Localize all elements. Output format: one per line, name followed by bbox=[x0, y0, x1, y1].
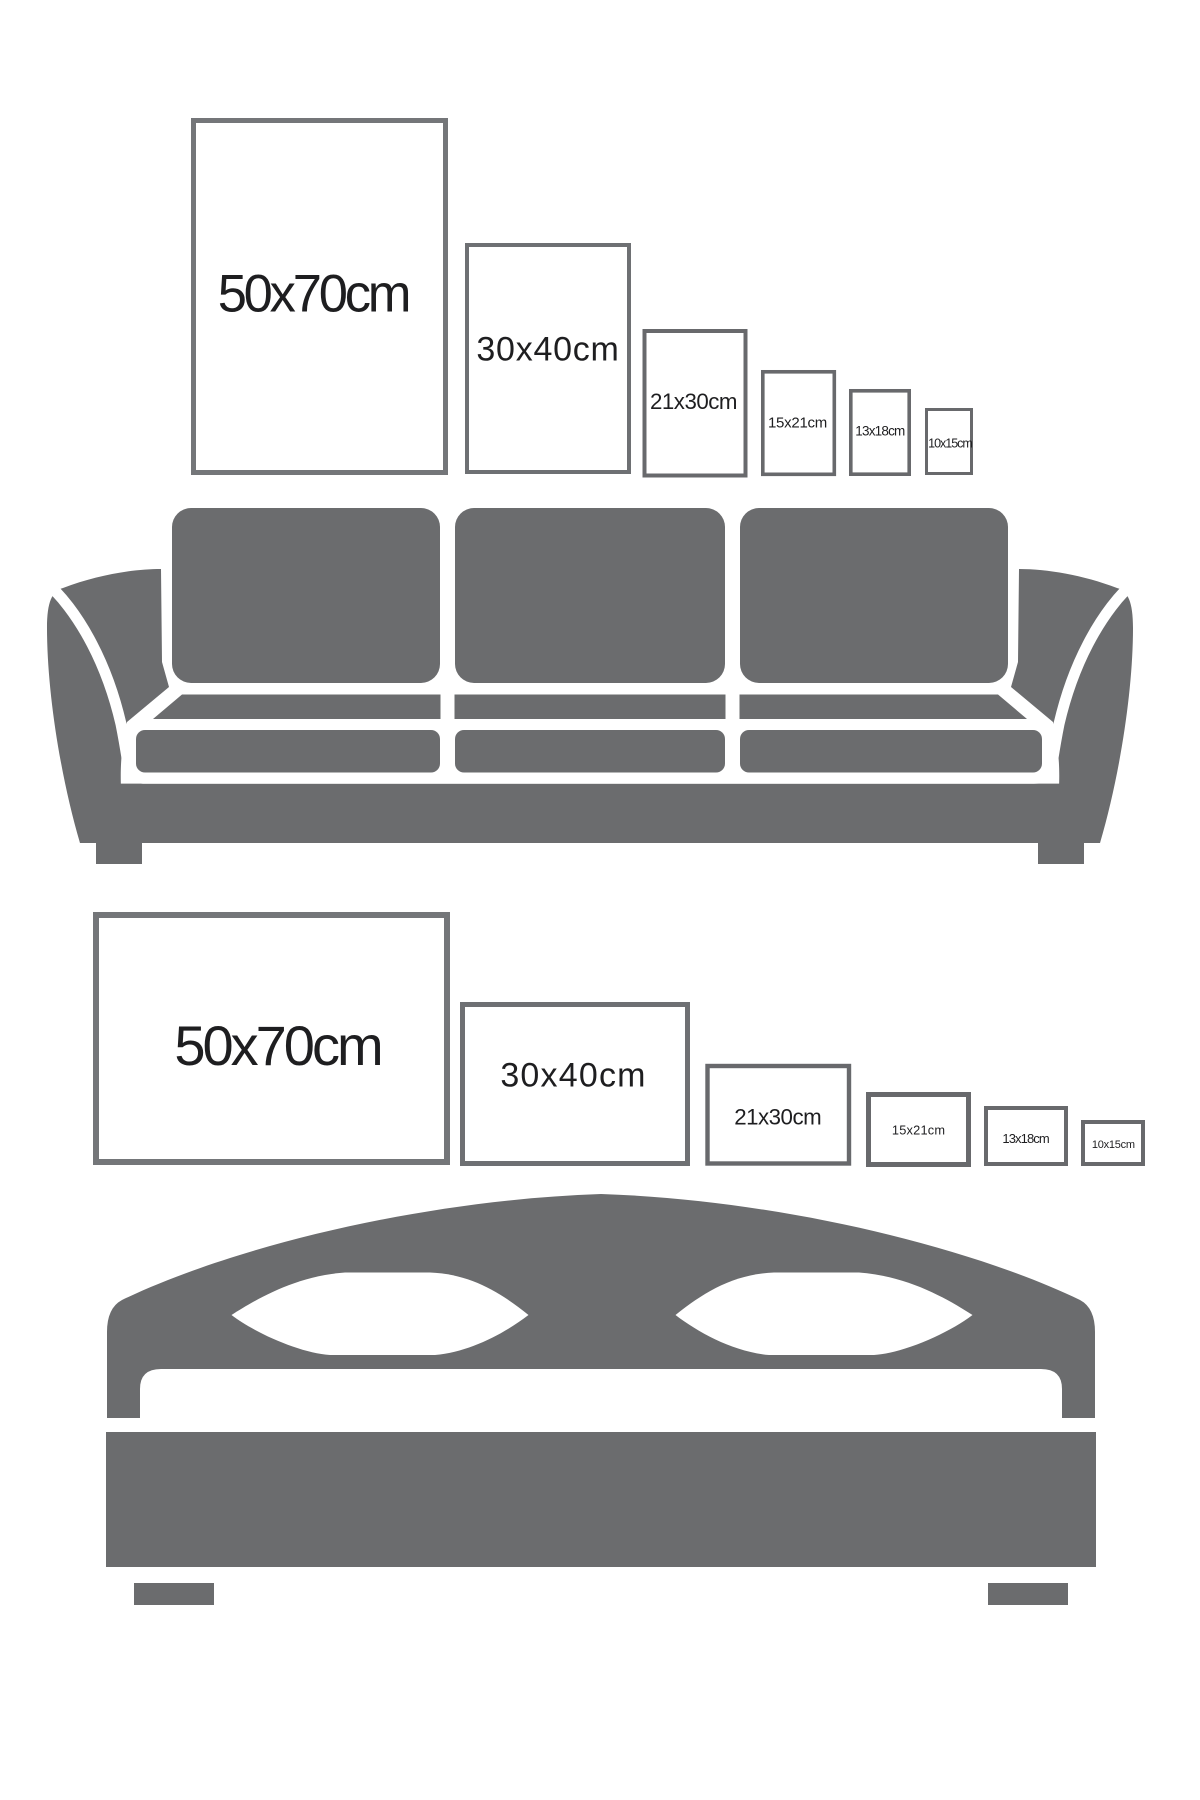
svg-text:21x30cm: 21x30cm bbox=[650, 389, 737, 414]
svg-text:13x18cm: 13x18cm bbox=[855, 424, 905, 439]
svg-text:50x70cm: 50x70cm bbox=[218, 265, 409, 324]
svg-text:15x21cm: 15x21cm bbox=[768, 414, 827, 431]
svg-text:10x15cm: 10x15cm bbox=[928, 436, 972, 450]
svg-text:15x21cm: 15x21cm bbox=[892, 1123, 945, 1138]
svg-text:30x40cm: 30x40cm bbox=[500, 1057, 646, 1095]
svg-text:21x30cm: 21x30cm bbox=[734, 1105, 821, 1130]
svg-text:13x18cm: 13x18cm bbox=[1002, 1131, 1049, 1146]
svg-text:10x15cm: 10x15cm bbox=[1092, 1139, 1135, 1151]
svg-text:30x40cm: 30x40cm bbox=[476, 331, 619, 369]
svg-text:50x70cm: 50x70cm bbox=[174, 1014, 380, 1077]
